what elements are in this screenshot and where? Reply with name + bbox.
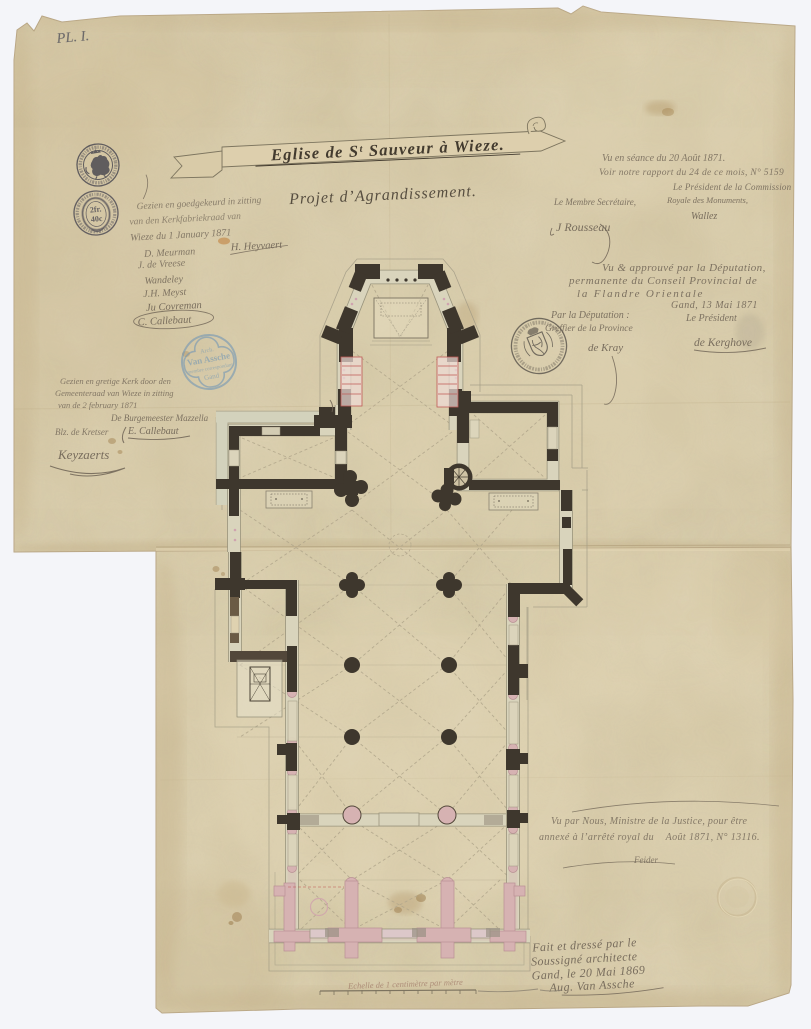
svg-text:PL. I.: PL. I. — [55, 28, 90, 47]
svg-text:permanente du Conseil Provinci: permanente du Conseil Provincial de — [568, 275, 757, 287]
svg-text:van de 2 february 1871: van de 2 february 1871 — [58, 400, 137, 410]
svg-text:Le Président de la Commission: Le Président de la Commission — [672, 182, 792, 192]
svg-text:De Burgemeester Mazzella: De Burgemeester Mazzella — [110, 413, 209, 423]
svg-text:Wallez: Wallez — [691, 211, 717, 222]
svg-text:Voir notre rapport du 24 de ce: Voir notre rapport du 24 de ce mois, N° … — [599, 167, 784, 178]
svg-text:E. Callebaut: E. Callebaut — [127, 426, 179, 437]
svg-text:Blz. de Kretser: Blz. de Kretser — [55, 427, 109, 437]
svg-text:la Flandre Orientale: la Flandre Orientale — [577, 288, 704, 300]
svg-text:Greffier de la Province: Greffier de la Province — [545, 323, 633, 334]
svg-text:Gemeenteraad van Wieze in zitt: Gemeenteraad van Wieze in zitting — [55, 388, 174, 398]
svg-text:Gand, 13 Mai 1871: Gand, 13 Mai 1871 — [671, 300, 758, 311]
svg-text:J Rousseau: J Rousseau — [556, 220, 610, 234]
svg-text:Gezien en gretige Kerk door de: Gezien en gretige Kerk door den — [60, 376, 171, 386]
svg-text:Feider: Feider — [633, 855, 658, 865]
svg-text:J.H. Meyst: J.H. Meyst — [143, 287, 187, 300]
svg-text:2fr.: 2fr. — [89, 204, 101, 214]
svg-text:Vu en séance du 20 Août 1871.: Vu en séance du 20 Août 1871. — [602, 153, 725, 164]
svg-text:Par la Députation :: Par la Députation : — [550, 310, 630, 321]
svg-text:Vu par Nous, Ministre de la Ju: Vu par Nous, Ministre de la Justice, pou… — [551, 816, 747, 827]
svg-text:de Kerghove: de Kerghove — [694, 337, 752, 349]
svg-text:annexé à l’arrêté royal du: annexé à l’arrêté royal du Août 1871, N°… — [539, 832, 760, 843]
svg-text:Royale des Monuments,: Royale des Monuments, — [666, 195, 748, 205]
svg-text:Wandeley: Wandeley — [144, 274, 184, 287]
svg-text:Vu & approuvé par la Députatio: Vu & approuvé par la Députation, — [602, 262, 766, 274]
svg-text:Le Membre Secrétaire,: Le Membre Secrétaire, — [553, 197, 636, 207]
svg-text:40c: 40c — [90, 214, 103, 224]
svg-text:Keyzaerts: Keyzaerts — [57, 447, 109, 462]
svg-text:Le Président: Le Président — [685, 313, 737, 324]
svg-text:de Kray: de Kray — [588, 342, 623, 354]
